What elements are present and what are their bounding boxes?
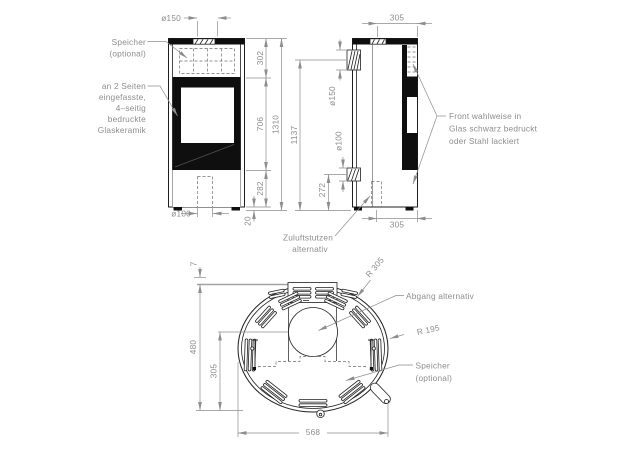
svg-text:Glas schwarz bedruckt: Glas schwarz bedruckt — [449, 124, 538, 134]
dim-side-flue-height: 1137 — [289, 126, 299, 145]
front-view — [169, 39, 245, 211]
dim-front-feet-height: 20 — [243, 216, 253, 226]
dim-top-radius-outer: R 305 — [363, 255, 386, 279]
svg-text:alternativ: alternativ — [292, 244, 328, 254]
label-speicher-front-line2: (optional) — [109, 49, 146, 59]
dim-front-flue-diameter: ø150 — [161, 13, 181, 23]
front-glass-window — [181, 88, 234, 144]
stove-dimension-drawing: ø150 302 706 282 1310 20 ø100 Speicher (… — [0, 0, 624, 460]
dim-side-top-depth: 305 — [390, 13, 405, 23]
top-view — [197, 283, 392, 418]
label-front-material-note: Front wahlweise in Glas schwarz bedruckt… — [413, 64, 538, 184]
svg-text:Abgang alternativ: Abgang alternativ — [406, 291, 475, 301]
dim-front-total-height: 1310 — [271, 115, 281, 134]
dim-side-air-diameter: ø100 — [334, 131, 344, 151]
top-flue-pipe-circle — [289, 308, 338, 357]
svg-text:Glaskeramik: Glaskeramik — [98, 125, 147, 135]
dim-top-width: 568 — [306, 427, 321, 437]
dim-front-mid-section: 706 — [255, 117, 265, 132]
svg-text:4–seitig: 4–seitig — [116, 103, 146, 113]
dim-top-radius-front: R 195 — [416, 322, 441, 337]
svg-text:(optional): (optional) — [416, 373, 453, 383]
svg-text:Speicher: Speicher — [416, 361, 450, 371]
technical-drawing-page: ø150 302 706 282 1310 20 ø100 Speicher (… — [0, 0, 624, 460]
dim-side-flue-diameter: ø150 — [327, 86, 337, 106]
side-view — [347, 39, 418, 211]
svg-text:an 2 Seiten: an 2 Seiten — [102, 81, 146, 91]
svg-text:eingefasste,: eingefasste, — [99, 92, 146, 102]
dim-top-collar-offset: 7 — [189, 261, 199, 266]
side-rear-air-stub — [347, 168, 361, 181]
svg-text:Front wahlweise in: Front wahlweise in — [449, 111, 521, 121]
dim-side-air-height: 272 — [317, 183, 327, 198]
dim-top-rear-depth: 305 — [209, 364, 219, 379]
dim-front-base-section: 282 — [255, 181, 265, 196]
dim-top-depth: 480 — [188, 340, 198, 355]
svg-text:bedruckte: bedruckte — [108, 114, 146, 124]
label-glass-ceramic: an 2 Seiten eingefasste, 4–seitig bedruc… — [98, 81, 178, 135]
dim-side-bottom-depth: 305 — [390, 220, 405, 230]
svg-text:Zuluftstutzen: Zuluftstutzen — [283, 233, 333, 243]
side-rear-flue-stub — [347, 50, 361, 70]
svg-text:oder Stahl lackiert: oder Stahl lackiert — [449, 136, 520, 146]
label-speicher-front-line1: Speicher — [112, 37, 146, 47]
dim-front-top-section: 302 — [255, 51, 265, 66]
